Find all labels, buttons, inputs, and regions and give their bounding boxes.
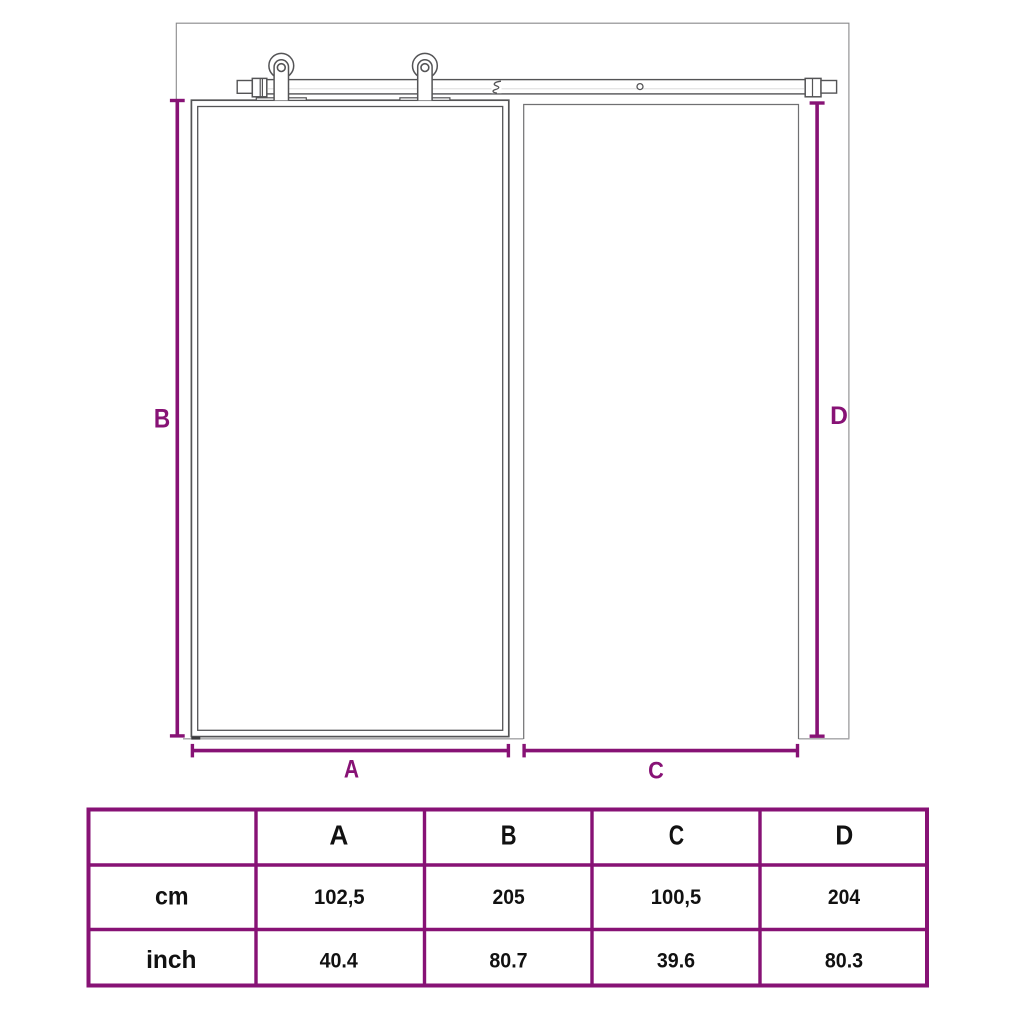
svg-text:205: 205	[493, 884, 525, 909]
svg-text:D: D	[830, 402, 848, 430]
svg-text:A: A	[344, 755, 359, 783]
svg-text:B: B	[154, 403, 170, 433]
svg-text:40.4: 40.4	[320, 948, 358, 973]
svg-text:102,5: 102,5	[314, 884, 365, 909]
svg-text:B: B	[501, 820, 517, 851]
svg-text:80.7: 80.7	[489, 948, 527, 973]
svg-text:cm: cm	[155, 882, 189, 910]
svg-text:80.3: 80.3	[825, 948, 863, 973]
svg-text:39.6: 39.6	[657, 948, 695, 973]
svg-text:100,5: 100,5	[651, 884, 702, 909]
svg-text:D: D	[835, 820, 853, 851]
svg-text:inch: inch	[146, 946, 196, 974]
svg-text:204: 204	[828, 884, 860, 909]
svg-text:C: C	[669, 820, 684, 851]
svg-text:C: C	[648, 758, 664, 785]
svg-text:A: A	[329, 820, 348, 851]
